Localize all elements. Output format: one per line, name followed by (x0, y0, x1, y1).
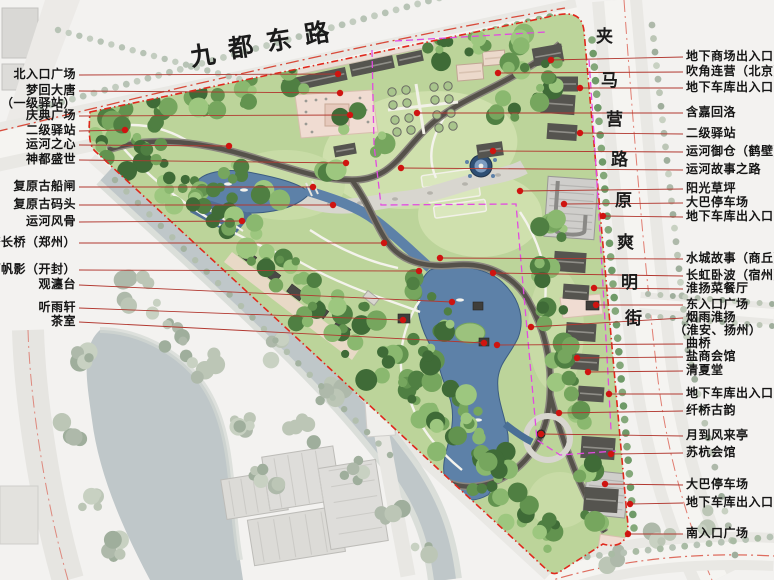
tree-icon (411, 410, 429, 428)
tree-icon (661, 130, 668, 137)
tree-icon (211, 88, 225, 102)
tree-icon (492, 488, 509, 505)
tree-icon (238, 303, 244, 309)
tree-icon (754, 535, 761, 542)
tree-icon (706, 540, 713, 547)
tree-icon (108, 41, 114, 47)
tree-icon (193, 64, 199, 70)
tree-icon (520, 63, 530, 73)
tree-icon (431, 51, 451, 71)
tree-icon (448, 426, 467, 445)
tree-icon (228, 174, 238, 184)
tree-icon (112, 177, 118, 183)
tree-icon (382, 9, 389, 16)
tree-icon (181, 175, 190, 184)
tree-icon (76, 33, 82, 39)
tree-icon (464, 47, 473, 56)
tree-icon (181, 246, 187, 252)
tree-icon (658, 103, 665, 110)
tree-icon (272, 337, 278, 343)
tree-icon (204, 67, 210, 73)
tree-icon (573, 470, 586, 483)
poi-dot[interactable] (335, 71, 341, 77)
tree-icon (189, 97, 209, 117)
tree-icon (47, 102, 54, 109)
tree-icon (231, 51, 238, 58)
tree-icon (285, 36, 292, 43)
tree-icon (698, 405, 705, 412)
tree-icon (83, 488, 100, 505)
tree-icon (427, 292, 436, 301)
tree-icon (624, 456, 632, 464)
tree-icon (284, 349, 290, 355)
poi-dot[interactable] (538, 431, 544, 437)
tree-icon (645, 547, 652, 554)
tree-icon (163, 320, 172, 329)
poi-dot[interactable] (414, 110, 420, 116)
poi-dot[interactable] (398, 165, 404, 171)
tree-icon (673, 238, 680, 245)
tree-icon (677, 279, 684, 286)
tree-icon (594, 104, 602, 112)
tree-icon (701, 420, 708, 427)
tree-icon (360, 302, 370, 312)
tree-icon (659, 116, 666, 123)
tree-icon (134, 78, 141, 85)
tree-icon (151, 53, 157, 59)
hall-building (583, 487, 619, 513)
poi-dot[interactable] (416, 268, 422, 274)
tree-icon (767, 534, 774, 541)
tree-icon (444, 307, 452, 315)
poi-dot[interactable] (602, 481, 608, 487)
tree-icon (681, 543, 688, 550)
tree-icon (384, 505, 401, 522)
tree-icon (352, 417, 358, 423)
tree-icon (479, 452, 498, 471)
tree-icon (682, 294, 688, 300)
poi-dot[interactable] (449, 299, 455, 305)
tree-icon (653, 62, 660, 69)
tree-icon (149, 115, 164, 130)
tree-icon (87, 35, 93, 41)
poi-dot[interactable] (548, 57, 554, 63)
tree-icon (169, 234, 175, 240)
tree-icon (140, 143, 153, 156)
tree-icon (198, 60, 205, 67)
tree-icon (269, 278, 283, 292)
poi-dot[interactable] (600, 213, 606, 219)
tree-icon (242, 48, 249, 55)
tree-icon (547, 210, 566, 229)
tree-icon (489, 104, 505, 120)
tree-icon (662, 143, 669, 150)
tree-icon (513, 37, 530, 54)
tree-icon (153, 299, 161, 307)
tree-icon (707, 318, 713, 324)
tree-icon (80, 93, 87, 100)
tree-icon (121, 297, 137, 313)
tree-icon (407, 395, 416, 404)
tree-icon (164, 184, 174, 194)
tree-icon (609, 280, 617, 288)
poi-dot[interactable] (490, 148, 496, 154)
tree-icon (615, 348, 623, 356)
tree-icon (276, 256, 284, 264)
tree-icon (742, 536, 749, 543)
poi-dot[interactable] (606, 391, 612, 397)
tree-icon (187, 357, 198, 368)
tree-icon (249, 314, 255, 320)
tree-icon (104, 531, 122, 549)
tree-icon (589, 50, 597, 58)
tree-icon (422, 42, 433, 53)
tree-icon (69, 96, 76, 103)
tree-icon (331, 108, 349, 126)
tree-icon (55, 27, 61, 33)
tree-icon (349, 18, 356, 25)
tree-icon (671, 225, 678, 232)
tree-icon (186, 197, 200, 211)
tree-icon (192, 257, 198, 263)
tree-icon (502, 62, 514, 74)
master-plan-map (0, 0, 774, 580)
tree-icon (257, 464, 268, 475)
tree-icon (708, 449, 715, 456)
tree-icon (588, 36, 596, 44)
tree-icon (119, 44, 125, 50)
tree-icon (657, 292, 663, 298)
tree-icon (622, 429, 630, 437)
tree-icon (623, 443, 631, 451)
tree-icon (657, 545, 664, 552)
tree-icon (473, 407, 482, 416)
tree-icon (97, 38, 103, 44)
tree-icon (536, 84, 544, 92)
tree-icon (605, 226, 613, 234)
tree-icon (732, 320, 738, 326)
poi-dot[interactable] (625, 531, 631, 537)
tree-icon (537, 316, 552, 331)
tree-icon (140, 50, 146, 56)
tree-icon (542, 512, 557, 527)
tree-icon (292, 257, 300, 265)
tree-icon (296, 33, 303, 40)
poi-dot[interactable] (556, 410, 562, 416)
tree-icon (593, 90, 601, 98)
tree-icon (422, 350, 433, 361)
tree-icon (371, 12, 378, 19)
tree-icon (537, 301, 549, 313)
tree-icon (318, 383, 324, 389)
tree-icon (601, 185, 609, 193)
tree-icon (393, 6, 400, 13)
tree-icon (163, 172, 175, 184)
site-plan: 北入口广场梦回大唐（一级驿站）庆典广场二级驿站运河之心神都盛世复原古船闸复原古码… (0, 0, 774, 580)
tree-icon (226, 192, 237, 203)
tree-icon (614, 334, 622, 342)
tree-icon (725, 522, 732, 529)
tree-icon (414, 1, 421, 8)
poi-dot[interactable] (627, 501, 633, 507)
tree-icon (600, 172, 608, 180)
tree-icon (328, 297, 346, 315)
tree-icon (596, 552, 603, 559)
tree-icon (263, 352, 280, 369)
tree-icon (387, 452, 393, 458)
tree-icon (65, 30, 71, 36)
tree-icon (508, 482, 528, 502)
tree-icon (101, 87, 108, 94)
hall-building (546, 123, 577, 141)
poi-dot[interactable] (226, 143, 232, 149)
tree-icon (718, 539, 725, 546)
tree-icon (612, 307, 620, 315)
tree-icon (608, 267, 616, 275)
tree-icon (705, 434, 712, 441)
tree-icon (307, 273, 322, 288)
tree-icon (207, 348, 220, 361)
poi-dot[interactable] (490, 270, 496, 276)
tree-icon (307, 435, 321, 449)
poi-dot[interactable] (400, 317, 406, 323)
tree-icon (377, 346, 388, 357)
tree-icon (144, 75, 151, 82)
tree-icon (744, 299, 750, 305)
tree-icon (510, 113, 519, 122)
tree-icon (620, 402, 628, 410)
poi-dot[interactable] (561, 201, 567, 207)
tree-icon (461, 413, 473, 425)
tree-icon (236, 237, 257, 258)
tree-icon (274, 39, 281, 46)
tree-icon (295, 360, 301, 366)
poi-dot[interactable] (343, 160, 349, 166)
tree-icon (695, 317, 701, 323)
tree-icon (306, 30, 313, 37)
tree-icon (719, 319, 725, 325)
tree-icon (607, 253, 615, 261)
tree-icon (562, 371, 577, 386)
tree-icon (302, 316, 313, 327)
tree-icon (129, 47, 135, 53)
tree-icon (685, 347, 692, 354)
tree-icon (252, 45, 259, 52)
tree-icon (378, 131, 386, 139)
tree-icon (564, 386, 579, 401)
tree-icon (142, 277, 154, 289)
tree-icon (722, 508, 729, 515)
tree-icon (532, 525, 547, 540)
poi-dot[interactable] (310, 184, 316, 190)
poi-dot[interactable] (593, 302, 599, 308)
tree-icon (667, 184, 674, 191)
tree-icon (191, 371, 204, 384)
poi-dot[interactable] (577, 85, 583, 91)
tree-icon (366, 310, 386, 330)
tree-icon (323, 324, 341, 342)
tree-icon (233, 159, 249, 175)
tree-icon (225, 218, 235, 228)
tree-icon (702, 505, 713, 516)
tree-icon (629, 511, 637, 519)
tree-icon (360, 15, 367, 22)
tree-icon (695, 295, 701, 301)
tree-icon (317, 27, 324, 34)
poi-dot[interactable] (337, 90, 343, 96)
poi-dot[interactable] (517, 188, 523, 194)
tree-icon (158, 223, 164, 229)
tree-icon (123, 188, 129, 194)
poi-dot[interactable] (481, 340, 487, 346)
poi-dot[interactable] (122, 127, 128, 133)
tree-icon (254, 473, 269, 488)
tree-icon (211, 205, 226, 220)
tree-icon (670, 293, 676, 299)
tree-icon (84, 353, 93, 362)
tree-icon (114, 549, 125, 560)
tree-icon (172, 59, 178, 65)
tree-icon (619, 389, 627, 397)
tree-icon (732, 552, 739, 559)
tree-icon (584, 511, 605, 532)
courtyard-building (456, 63, 483, 81)
tree-icon (209, 57, 216, 64)
tree-icon (65, 428, 82, 445)
tree-icon (650, 35, 657, 42)
poi-dot[interactable] (494, 342, 500, 348)
tree-icon (669, 544, 676, 551)
hall-building (578, 386, 605, 403)
tree-icon (159, 98, 178, 117)
tree-icon (288, 315, 305, 332)
tree-icon (543, 545, 551, 553)
tree-icon (559, 305, 569, 315)
tree-icon (112, 84, 119, 91)
poi-dot[interactable] (528, 324, 534, 330)
tree-icon (596, 131, 604, 139)
poi-dot[interactable] (495, 70, 501, 76)
tree-icon (146, 211, 152, 217)
tree-icon (683, 333, 690, 340)
tree-icon (208, 101, 226, 119)
poi-dot[interactable] (347, 112, 353, 118)
poi-dot[interactable] (330, 202, 336, 208)
tree-icon (203, 268, 209, 274)
tree-icon (241, 94, 257, 110)
tree-icon (307, 372, 313, 378)
tree-icon (711, 464, 718, 471)
tree-icon (674, 252, 681, 259)
tree-icon (245, 421, 255, 431)
tree-icon (146, 306, 159, 319)
tree-icon (744, 321, 750, 327)
tree-icon (178, 337, 187, 346)
tree-icon (339, 21, 346, 28)
tree-icon (355, 369, 377, 391)
tree-icon (682, 316, 688, 322)
tree-icon (602, 199, 610, 207)
tree-icon (610, 294, 618, 302)
tree-icon (608, 551, 615, 558)
tree-icon (341, 350, 349, 358)
poi-dot[interactable] (585, 369, 591, 375)
tree-icon (652, 49, 659, 56)
tree-icon (599, 158, 607, 166)
tree-icon (215, 280, 221, 286)
tree-icon (616, 362, 624, 370)
tree-icon (341, 406, 347, 412)
tree-icon (534, 258, 544, 268)
tree-icon (617, 375, 625, 383)
tree-icon (123, 81, 130, 88)
tree-icon (730, 538, 737, 545)
poi-dot[interactable] (574, 355, 580, 361)
tree-icon (645, 291, 651, 297)
poi-dot[interactable] (381, 240, 387, 246)
tree-icon (430, 419, 444, 433)
tree-icon (178, 183, 188, 193)
tree-icon (571, 401, 590, 420)
tree-icon (269, 190, 290, 211)
poi-dot[interactable] (437, 255, 443, 261)
poi-dot[interactable] (239, 218, 245, 224)
tree-icon (272, 477, 286, 491)
tree-icon (257, 258, 276, 277)
tree-icon (300, 417, 315, 432)
tree-icon (626, 470, 634, 478)
tree-icon (495, 90, 511, 106)
tree-icon (595, 118, 603, 126)
tree-icon (695, 391, 702, 398)
tree-icon (556, 232, 566, 242)
tree-icon (446, 320, 455, 329)
tree-icon (655, 76, 662, 83)
poi-dot[interactable] (591, 285, 597, 291)
tree-icon (403, 3, 410, 10)
tree-icon (328, 24, 335, 31)
tree-icon (621, 416, 629, 424)
tree-icon (477, 483, 487, 493)
tree-icon (435, 46, 443, 54)
hall-building (563, 284, 590, 301)
tree-icon (308, 302, 317, 311)
tree-icon (177, 66, 184, 73)
poi-dot[interactable] (577, 130, 583, 136)
tree-icon (364, 429, 370, 435)
tree-icon (375, 440, 381, 446)
tree-icon (688, 361, 695, 368)
tree-icon (234, 420, 246, 432)
tree-icon (330, 395, 336, 401)
tree-icon (693, 541, 700, 548)
tree-icon (282, 421, 296, 435)
tree-icon (427, 442, 446, 461)
tree-icon (584, 454, 602, 472)
tree-icon (251, 185, 270, 204)
tree-icon (591, 63, 599, 71)
tree-icon (398, 378, 407, 387)
tree-icon (183, 61, 189, 67)
tree-icon (670, 315, 676, 321)
poi-dot[interactable] (608, 451, 614, 457)
tree-icon (691, 376, 698, 383)
tree-icon (656, 89, 663, 96)
tree-icon (53, 413, 71, 431)
tree-icon (606, 240, 614, 248)
tree-icon (406, 277, 419, 290)
tree-icon (530, 93, 549, 112)
